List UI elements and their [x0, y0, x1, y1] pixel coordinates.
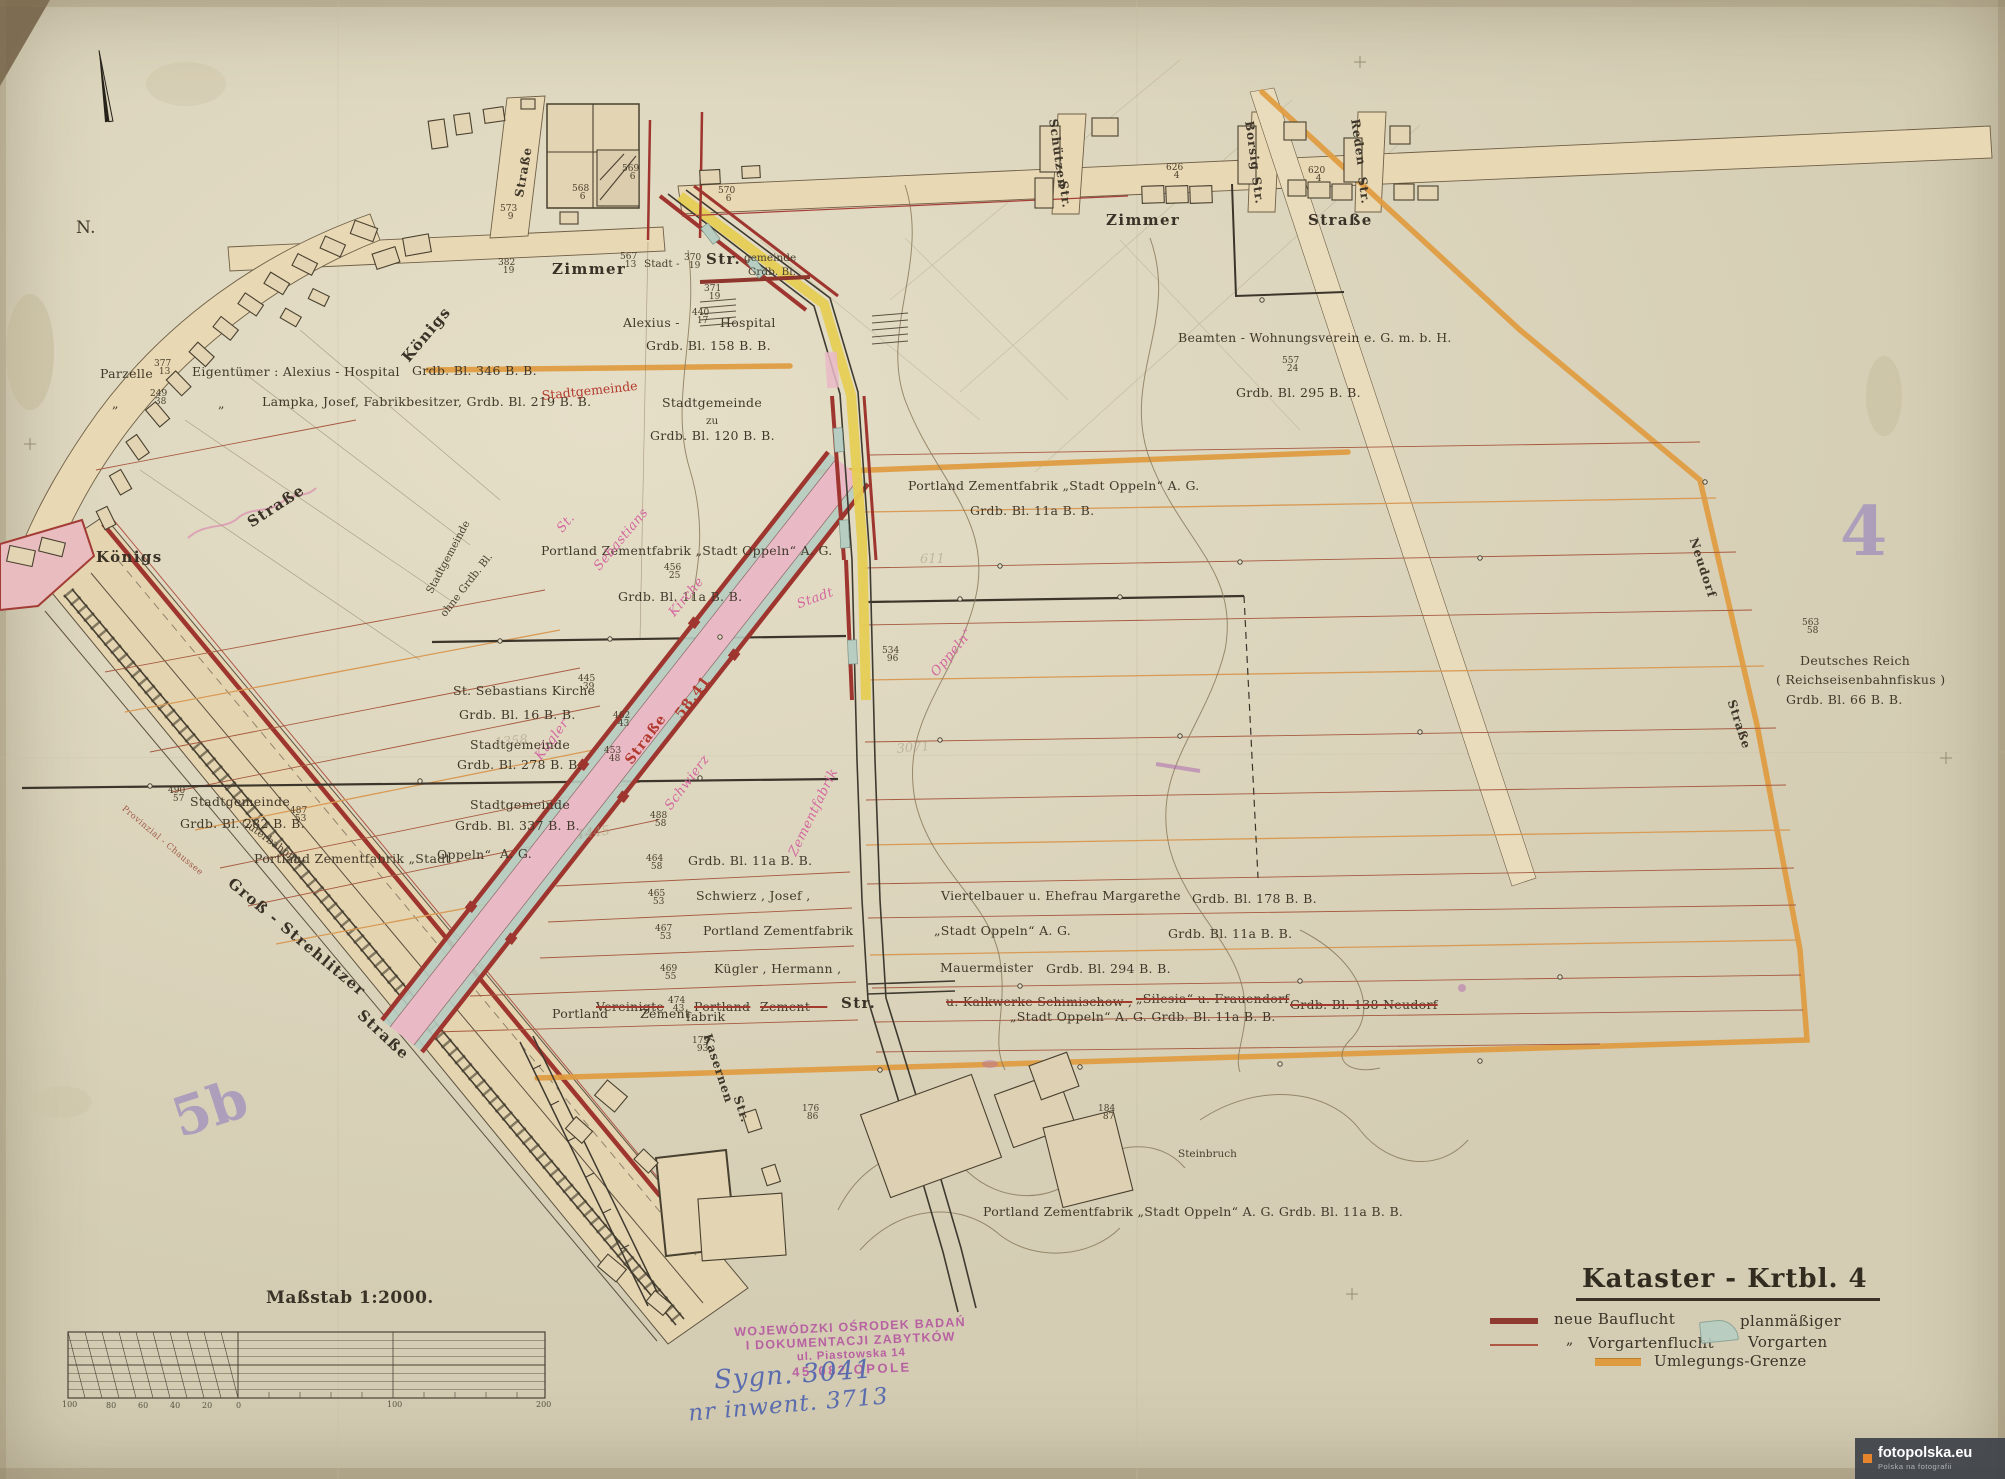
- street-label-zimmer-west: Zimmer: [552, 260, 626, 278]
- map-sheet: N.StraßeZimmerStadt -Str.gemeindeGrdb. B…: [0, 0, 2005, 1479]
- map-label: Str.: [706, 250, 741, 268]
- map-label: 56713: [620, 254, 637, 270]
- street-label: Straße: [512, 146, 535, 199]
- street-label-zimmer-east: Zimmer: [1106, 211, 1180, 229]
- map-label: 44017: [692, 310, 709, 326]
- map-label: 37019: [684, 255, 701, 271]
- map-label: Str.: [1056, 180, 1074, 209]
- map-label: 45348: [604, 748, 621, 764]
- map-label: Straße: [1308, 211, 1373, 229]
- map-label: A. G.: [500, 846, 532, 861]
- street-label-kasernen: Kasernen: [701, 1032, 737, 1105]
- map-label: Deutsches Reich: [1800, 653, 1910, 668]
- map-label: Beamten - Wohnungsverein e. G. m. b. H.: [1178, 330, 1452, 345]
- map-label: 48858: [650, 813, 667, 829]
- map-label: Grdb. Bl.: [748, 266, 796, 278]
- map-label: 3071: [896, 739, 930, 757]
- map-label: 46458: [646, 856, 663, 872]
- map-label: 53496: [882, 648, 899, 664]
- map-label: „Stadt Oppeln“ A. G.: [934, 923, 1071, 938]
- map-label: 46243: [613, 713, 630, 729]
- map-label: 37119: [704, 286, 721, 302]
- map-title: Kataster - Krtbl. 4: [1576, 1264, 1880, 1301]
- map-label: Stadt -: [644, 258, 680, 270]
- map-label: 20: [202, 1401, 212, 1410]
- map-label: gemeinde: [744, 252, 796, 264]
- map-label: 200: [536, 1400, 551, 1409]
- map-label: 47443: [668, 998, 685, 1014]
- map-label: Str.: [1249, 176, 1267, 205]
- map-label: 5696: [622, 166, 639, 182]
- map-label: Grdb. Bl. 278 B. B.: [457, 757, 582, 772]
- map-label: Str.: [731, 1094, 753, 1125]
- map-label: Stadtgemeinde: [662, 395, 762, 410]
- street-label-reden: Reden: [1348, 118, 1368, 167]
- map-label: Portland Zementfabrik „Stadt Oppeln“ A. …: [983, 1204, 1403, 1219]
- street-label-schuetzen: Schützen: [1046, 118, 1070, 189]
- legend-vorgarten-area-label-top: planmäßiger: [1740, 1312, 1841, 1330]
- map-label: Parzelle: [100, 366, 153, 381]
- map-label: 611: [920, 552, 945, 567]
- map-label: 1445: [576, 823, 611, 842]
- map-label: 17686: [802, 1106, 819, 1122]
- map-label: Grdb. Bl. 295 B. B.: [1236, 385, 1361, 400]
- legend-vorgartenflucht-swatch: [1490, 1344, 1538, 1346]
- map-label: Straße: [354, 1006, 414, 1063]
- map-label: 55724: [1282, 358, 1299, 374]
- map-label: „Stadt Oppeln“ A. G. Grdb. Bl. 11a B. B.: [1010, 1009, 1276, 1024]
- map-label: 5686: [572, 186, 589, 202]
- map-label: Straße: [1725, 698, 1754, 751]
- map-label: Grdb. Bl. 11a B. B.: [688, 853, 812, 868]
- map-label: 24938: [150, 391, 167, 407]
- map-label: u. Kalkwerke Schimischow ,: [946, 994, 1132, 1009]
- map-label: 80: [106, 1401, 116, 1410]
- sheet-number-4: 4: [1840, 492, 1887, 572]
- legend-umlegungs-grenze-label: Umlegungs-Grenze: [1654, 1352, 1807, 1370]
- map-label: 38219: [498, 260, 515, 276]
- map-label: 18487: [1098, 1106, 1115, 1122]
- map-label: 37713: [154, 361, 171, 377]
- map-label: Stadt: [795, 585, 836, 612]
- map-label: 58,41: [672, 673, 714, 722]
- map-label: Straße: [244, 481, 308, 531]
- map-label: 40: [170, 1401, 180, 1410]
- map-label: „: [112, 396, 119, 411]
- street-label-koenigs: Königs: [398, 303, 455, 366]
- map-label: Königs: [96, 548, 163, 566]
- map-label: 100: [62, 1400, 77, 1409]
- map-label: 6204: [1308, 168, 1325, 184]
- map-label: Hospital: [720, 315, 776, 330]
- map-label: „: [218, 396, 225, 411]
- map-label: Mauermeister: [940, 960, 1033, 975]
- map-label: Stadtgemeinde: [470, 797, 570, 812]
- legend-bauflucht-label: neue Bauflucht: [1554, 1310, 1675, 1328]
- watermark-fotopolska: fotopolska.eu Polska na fotografii: [1855, 1438, 2005, 1479]
- map-label: Str.: [841, 994, 876, 1012]
- map-label: Sebastians: [591, 505, 652, 573]
- map-label: Kügler , Hermann ,: [714, 961, 841, 976]
- street-label-borsig: Borsig: [1242, 120, 1263, 172]
- map-label: Portland Zementfabrik: [703, 923, 853, 938]
- map-label: Grdb. Bl. 294 B. B.: [1046, 961, 1171, 976]
- map-label: Grdb. Bl. 11a B. B.: [1168, 926, 1292, 941]
- legend-vorgarten-area-label-bottom: Vorgarten: [1748, 1333, 1828, 1351]
- map-label: Grdb. Bl. 158 B. B.: [646, 338, 771, 353]
- map-label: Viertelbauer u. Ehefrau Margarethe: [941, 888, 1181, 903]
- map-label: Zementfabrik: [786, 766, 841, 858]
- map-label: Oppeln“: [437, 847, 491, 862]
- map-label: 56358: [1802, 620, 1819, 636]
- map-label: ( Reichseisenbahnfiskus ): [1776, 672, 1945, 687]
- legend-vorgartenflucht-label: Vorgartenflucht: [1588, 1334, 1714, 1352]
- scale-title: Maßstab 1:2000.: [266, 1288, 434, 1308]
- legend-umlegungs-grenze-swatch: [1595, 1358, 1641, 1366]
- map-label: Str.: [1355, 176, 1373, 205]
- map-label: 46753: [655, 926, 672, 942]
- map-label: Grdb. Bl. 178 B. B.: [1192, 891, 1317, 906]
- map-label: 60: [138, 1401, 148, 1410]
- map-label: Schwierz , Josef ,: [696, 888, 811, 903]
- map-label: 48753: [290, 808, 307, 824]
- quarry-label: Steinbruch: [1178, 1148, 1237, 1160]
- north-label: N.: [76, 218, 96, 238]
- watermark-site: fotopolska.eu: [1878, 1446, 1972, 1462]
- map-label: 5739: [500, 206, 517, 222]
- map-label: Grdb. Bl. 138 Neudorf: [1290, 997, 1438, 1012]
- map-label: Portland Zementfabrik „Stadt Oppeln“ A. …: [908, 478, 1200, 493]
- label-layer: N.StraßeZimmerStadt -Str.gemeindeGrdb. B…: [0, 0, 2005, 1479]
- map-label: 6264: [1166, 165, 1183, 181]
- street-label-neudorf: Neudorf: [1687, 536, 1720, 599]
- map-label: 0: [236, 1401, 241, 1410]
- map-label: Zement —: [760, 999, 827, 1014]
- map-label: 44539: [578, 676, 595, 692]
- map-label: Oppeln“: [928, 626, 977, 680]
- map-label: Grdb. Bl. 11a B. B.: [970, 503, 1094, 518]
- map-label: Grdb. Bl. 66 B. B.: [1786, 692, 1903, 707]
- map-label: Portland Zementfabrik „Stadt Oppeln“ A. …: [541, 543, 833, 558]
- map-label: St. Sebastians Kirche: [453, 683, 595, 698]
- map-label: Alexius -: [623, 315, 680, 330]
- map-label: Stadtgemeinde: [190, 794, 290, 809]
- map-label: 45625: [664, 565, 681, 581]
- map-label: 49057: [168, 788, 185, 804]
- map-label: Schwierz: [662, 752, 713, 813]
- legend-bauflucht-swatch: [1490, 1318, 1538, 1324]
- map-label: zu: [706, 415, 718, 427]
- map-label: 5706: [718, 188, 735, 204]
- legend-ditto-mark: „: [1566, 1332, 1573, 1348]
- map-label: Eigentümer : Alexius - Hospital: [192, 364, 400, 379]
- map-label: fabrik: [686, 1009, 725, 1024]
- fotopolska-logo-icon: [1863, 1454, 1872, 1463]
- street-label-gross-strehlitzer: Groß - Strehlitzer: [224, 874, 369, 1000]
- map-label: St.: [554, 511, 578, 536]
- map-label: „Silesia“ u. Frauendorf: [1136, 991, 1289, 1006]
- map-label: Grdb. Bl. 120 B. B.: [650, 428, 775, 443]
- map-label: Grdb. Bl. 337 B. B.: [455, 818, 580, 833]
- map-label: 46553: [648, 891, 665, 907]
- map-label: Grdb. Bl. 16 B. B.: [459, 707, 576, 722]
- map-label: 46955: [660, 966, 677, 982]
- map-label: Grdb. Bl. 346 B. B.: [412, 363, 537, 378]
- map-label: 100: [387, 1400, 402, 1409]
- watermark-tagline: Polska na fotografii: [1878, 1462, 1972, 1471]
